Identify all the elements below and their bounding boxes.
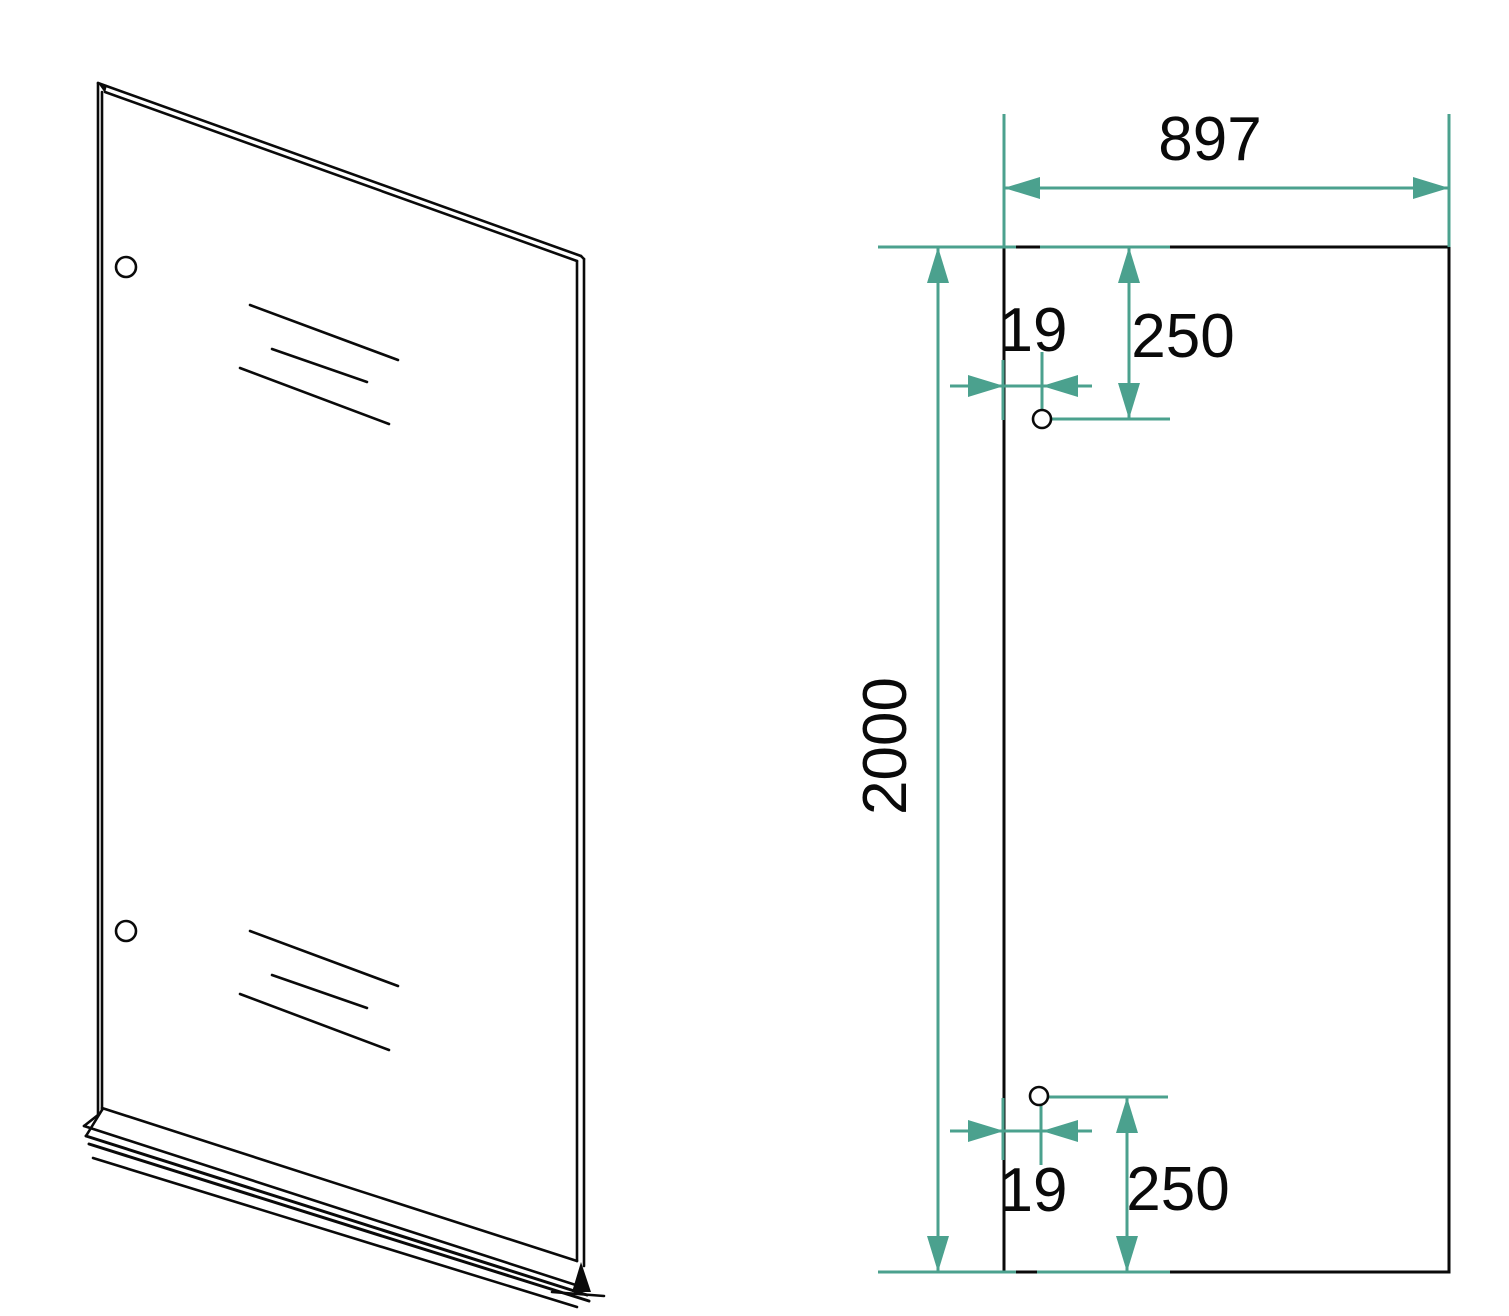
- dim-bot19-arrow-right: [1042, 1120, 1078, 1142]
- dim-top-hole-horizontal: 19: [950, 296, 1092, 420]
- dim-height: 2000: [851, 247, 1016, 1272]
- dim-top19-arrow-right: [1042, 375, 1078, 397]
- dim-top19-label: 19: [999, 296, 1068, 365]
- perspective-view: [84, 83, 604, 1307]
- glass-reflection-upper: [240, 305, 398, 424]
- dim-bot19-label: 19: [999, 1156, 1068, 1225]
- dim-bot19-arrow-left: [968, 1120, 1004, 1142]
- drawing-svg: 897 2000 250: [0, 0, 1509, 1316]
- iso-mount-hole-top: [116, 257, 136, 277]
- front-view: 897 2000 250: [851, 105, 1449, 1272]
- dim-width: 897: [1004, 105, 1449, 247]
- bottom-seal-strip: [84, 1108, 604, 1307]
- dim-bot250-arrow-bottom: [1116, 1236, 1138, 1272]
- dim-bot250-label: 250: [1126, 1155, 1229, 1224]
- dim-top250-arrow-bottom: [1118, 383, 1140, 419]
- dim-height-label: 2000: [851, 677, 920, 815]
- panel-outline: [1004, 247, 1449, 1272]
- technical-drawing-page: 897 2000 250: [0, 0, 1509, 1316]
- dim-top250-label: 250: [1131, 302, 1234, 371]
- glass-reflection-lower: [240, 931, 398, 1050]
- dim-bottom-hole-horizontal: 19: [950, 1098, 1092, 1225]
- dim-height-arrow-bottom: [927, 1236, 949, 1272]
- panel-top-edge: [98, 83, 584, 261]
- panel-right-edge: [577, 259, 584, 1266]
- dim-width-label: 897: [1158, 105, 1261, 174]
- dim-bot250-arrow-top: [1116, 1097, 1138, 1133]
- dim-width-arrow-left: [1004, 177, 1040, 199]
- seal-right-end-flare: [572, 1262, 591, 1292]
- dim-top19-arrow-left: [968, 375, 1004, 397]
- dim-height-arrow-top: [927, 247, 949, 283]
- iso-mount-hole-bottom: [116, 921, 136, 941]
- mount-hole-top: [1033, 410, 1051, 428]
- panel-left-edge: [98, 83, 102, 1115]
- dim-width-arrow-right: [1413, 177, 1449, 199]
- dim-top250-arrow-top: [1118, 247, 1140, 283]
- mount-hole-bottom: [1030, 1087, 1048, 1105]
